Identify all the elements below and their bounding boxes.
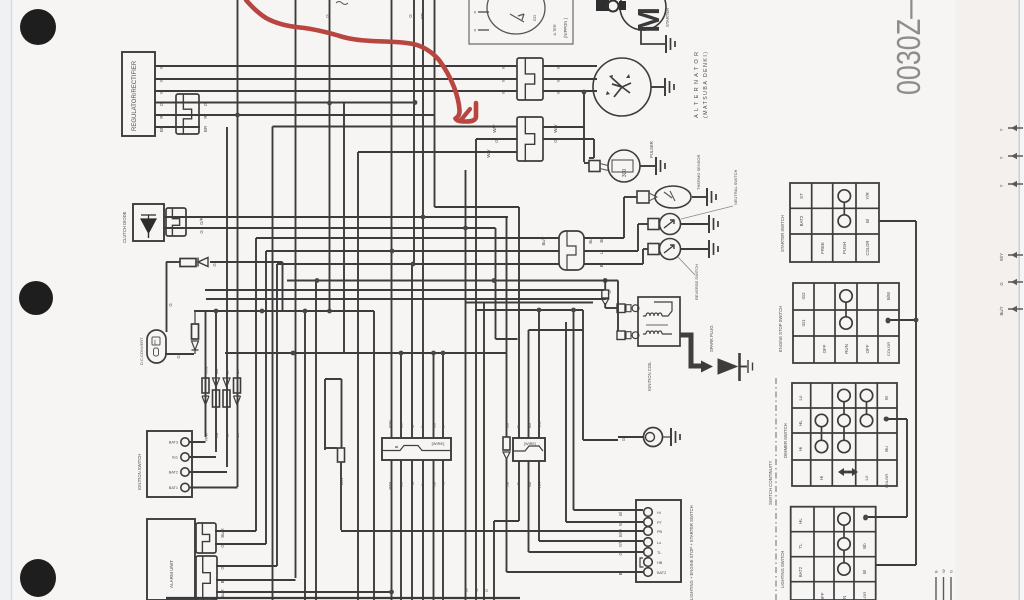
- svg-text:W/Y: W/Y: [999, 253, 1004, 261]
- svg-text:G: G: [408, 14, 413, 18]
- svg-text:GO: GO: [532, 15, 537, 21]
- svg-text:PUSH: PUSH: [842, 242, 847, 254]
- svg-text:BR: BR: [159, 125, 164, 132]
- svg-text:G: G: [159, 102, 164, 106]
- svg-text:Y/R: Y/R: [537, 482, 542, 489]
- svg-text:Y: Y: [501, 91, 506, 94]
- svg-text:W/Y: W/Y: [492, 124, 497, 133]
- svg-text:B: B: [441, 425, 446, 428]
- svg-text:Bu: Bu: [431, 423, 436, 428]
- svg-text:IG1: IG1: [172, 456, 178, 460]
- svg-text:W: W: [474, 588, 479, 592]
- svg-text:Bl: Bl: [618, 512, 623, 516]
- svg-text:Y: Y: [999, 156, 1004, 159]
- svg-text:W/Y: W/Y: [553, 124, 558, 133]
- svg-text:SPARK PLUG: SPARK PLUG: [709, 326, 714, 352]
- svg-text:IGNITION COIL: IGNITION COIL: [647, 361, 652, 391]
- svg-text:BAT1: BAT1: [169, 486, 178, 490]
- svg-text:Hi: Hi: [819, 476, 824, 480]
- svg-text:B/W: B/W: [618, 529, 623, 537]
- svg-text:Bu: Bu: [599, 237, 604, 243]
- svg-text:BAT2: BAT2: [799, 215, 804, 226]
- svg-text:Y: Y: [999, 184, 1004, 187]
- svg-text:R/W: R/W: [387, 482, 392, 490]
- svg-text:W/Y: W/Y: [486, 149, 491, 158]
- svg-text:G: G: [999, 282, 1004, 285]
- svg-text:Bu: Bu: [431, 482, 436, 487]
- svg-text:REVERSE SWITCH: REVERSE SWITCH: [694, 264, 699, 300]
- svg-text:R/W: R/W: [204, 433, 209, 441]
- svg-text:G: G: [220, 544, 225, 547]
- svg-text:M: M: [631, 7, 666, 33]
- svg-text:Hi: Hi: [798, 447, 803, 451]
- svg-text:IGNITION SWITCH: IGNITION SWITCH: [137, 454, 142, 490]
- svg-text:THERMO SENSOR: THERMO SENSOR: [696, 155, 701, 190]
- svg-text:MINI: MINI: [153, 339, 157, 345]
- svg-text:PULSER: PULSER: [649, 141, 654, 158]
- svg-text:Y: Y: [501, 66, 506, 69]
- svg-text:G: G: [516, 425, 521, 428]
- svg-text:Lo: Lo: [864, 475, 869, 480]
- svg-text:Bu: Bu: [527, 482, 532, 487]
- svg-text:COLOR: COLOR: [884, 474, 889, 488]
- svg-text:G: G: [410, 482, 415, 485]
- svg-text:G: G: [325, 14, 330, 18]
- svg-text:Bu: Bu: [214, 433, 219, 438]
- svg-text:Bu: Bu: [399, 423, 404, 428]
- svg-text:(NIPPON ): (NIPPON ): [563, 17, 568, 38]
- svg-text:G: G: [516, 482, 521, 485]
- svg-text:G/R: G/R: [199, 217, 204, 225]
- svg-text:(MATSUBA DENKI): (MATSUBA DENKI): [703, 52, 709, 118]
- svg-text:Y/R: Y/R: [537, 421, 542, 428]
- svg-text:Bu: Bu: [504, 423, 509, 428]
- svg-text:Hi: Hi: [657, 511, 661, 515]
- svg-text:Bu: Bu: [399, 482, 404, 487]
- svg-text:B/W: B/W: [339, 477, 344, 485]
- svg-text:Lo: Lo: [798, 395, 803, 400]
- svg-text:IG2: IG2: [801, 292, 806, 300]
- svg-text:Bu: Bu: [588, 238, 593, 244]
- svg-text:Bu/Y: Bu/Y: [999, 306, 1004, 315]
- svg-text:COLOR: COLOR: [862, 592, 867, 600]
- svg-text:Bl: Bl: [865, 219, 870, 223]
- svg-text:SWITCH CONTINUITY: SWITCH CONTINUITY: [768, 460, 773, 505]
- svg-text:B: B: [599, 264, 604, 267]
- svg-text:PB: PB: [657, 530, 663, 534]
- svg-text:Bu: Bu: [884, 446, 889, 452]
- svg-text:Br: Br: [464, 587, 469, 592]
- svg-text:TL: TL: [798, 543, 803, 549]
- svg-text:[WIRE]: [WIRE]: [432, 441, 445, 446]
- svg-text:Bu: Bu: [527, 423, 532, 428]
- svg-text:Y/R: Y/R: [865, 192, 870, 199]
- svg-text:B: B: [618, 572, 623, 575]
- svg-text:0030Z—: 0030Z—: [890, 0, 927, 95]
- svg-text:BR: BR: [203, 125, 208, 132]
- svg-text:Br: Br: [225, 432, 230, 437]
- svg-text:Bu: Bu: [504, 482, 509, 487]
- svg-text:STARTER: STARTER: [665, 8, 670, 27]
- svg-text:Bb: Bb: [862, 543, 867, 549]
- svg-text:G: G: [949, 570, 954, 573]
- svg-text:BAT2: BAT2: [169, 471, 178, 475]
- svg-text:Y/R: Y/R: [618, 541, 623, 548]
- svg-text:B: B: [934, 570, 939, 573]
- svg-text:LIGHTING + ENGINE STOP + START: LIGHTING + ENGINE STOP + STARTER SWITCH: [689, 505, 694, 600]
- svg-text:G: G: [618, 552, 623, 555]
- svg-text:Lo: Lo: [657, 541, 661, 545]
- svg-text:D.C.CONVERT: D.C.CONVERT: [139, 337, 144, 365]
- svg-text:OFF: OFF: [822, 344, 827, 353]
- svg-text:Y: Y: [999, 128, 1004, 131]
- svg-text:B/W: B/W: [886, 291, 891, 300]
- svg-text:LIGHTING SWITCH: LIGHTING SWITCH: [780, 551, 785, 588]
- svg-text:Y: Y: [501, 79, 506, 82]
- svg-text:ST: ST: [799, 193, 804, 199]
- svg-text:R/W: R/W: [387, 420, 392, 428]
- svg-text:Br: Br: [225, 369, 230, 374]
- svg-text:ON: ON: [842, 596, 847, 600]
- svg-text:OFF: OFF: [820, 592, 825, 600]
- svg-text:Y: Y: [159, 79, 164, 82]
- svg-text:[WIRE]: [WIRE]: [524, 442, 536, 446]
- svg-text:Bu: Bu: [214, 369, 219, 374]
- svg-text:BAT2: BAT2: [657, 571, 666, 575]
- svg-text:Bk: Bk: [235, 369, 240, 374]
- svg-text:Y: Y: [474, 28, 477, 33]
- svg-text:G: G: [607, 290, 612, 293]
- svg-text:B: B: [441, 482, 446, 485]
- svg-text:W: W: [618, 522, 623, 526]
- svg-text:ENGINE STOP SWITCH: ENGINE STOP SWITCH: [778, 306, 783, 352]
- svg-text:R/W: R/W: [204, 366, 209, 374]
- svg-text:Y: Y: [556, 79, 561, 82]
- svg-text:TL: TL: [657, 551, 661, 555]
- svg-text:G: G: [621, 438, 626, 441]
- svg-text:STARTER SWITCH: STARTER SWITCH: [780, 215, 785, 252]
- svg-text:B: B: [220, 580, 225, 583]
- svg-text:G: G: [220, 566, 225, 569]
- svg-text:HL: HL: [798, 420, 803, 426]
- svg-text:G: G: [494, 139, 499, 143]
- svg-text:Y: Y: [474, 10, 477, 15]
- svg-text:BAT2: BAT2: [798, 566, 803, 577]
- svg-text:W: W: [941, 569, 946, 573]
- svg-text:DIMMER SWITCH: DIMMER SWITCH: [783, 423, 788, 458]
- svg-text:COLOR: COLOR: [886, 342, 891, 356]
- svg-text:300: 300: [622, 169, 628, 178]
- svg-text:NEUTRAL SWITCH: NEUTRAL SWITCH: [733, 169, 738, 205]
- svg-text:Y: Y: [159, 66, 164, 69]
- svg-text:BR: BR: [420, 12, 425, 19]
- svg-text:G: G: [410, 425, 415, 428]
- svg-text:IG1: IG1: [801, 319, 806, 327]
- svg-text:G: G: [553, 139, 558, 143]
- svg-text:Bk: Bk: [235, 433, 240, 438]
- svg-text:HB: HB: [657, 561, 663, 565]
- svg-text:Y: Y: [556, 91, 561, 94]
- svg-text:Bl: Bl: [862, 570, 867, 574]
- svg-text:COLOR: COLOR: [865, 241, 870, 256]
- svg-text:Bu/R: Bu/R: [220, 528, 225, 537]
- svg-text:G: G: [203, 102, 208, 106]
- svg-text:CLUTCH DIODE: CLUTCH DIODE: [122, 211, 127, 243]
- svg-text:Y: Y: [159, 91, 164, 94]
- svg-text:RUN: RUN: [844, 344, 849, 354]
- svg-text:Bu/Y: Bu/Y: [541, 236, 546, 245]
- svg-text:FREE: FREE: [820, 242, 825, 254]
- svg-text:G: G: [484, 589, 489, 592]
- svg-text:HL: HL: [798, 518, 803, 524]
- svg-text:REGULATOR/RECTIFIER: REGULATOR/RECTIFIER: [132, 60, 138, 131]
- svg-text:PT: PT: [657, 521, 663, 525]
- svg-text:ALARM UNIT: ALARM UNIT: [169, 560, 174, 588]
- svg-text:BAT3: BAT3: [169, 441, 178, 445]
- svg-text:Y: Y: [556, 66, 561, 69]
- svg-text:B: B: [394, 445, 399, 448]
- svg-text:OFF: OFF: [865, 344, 870, 353]
- svg-text:A.TER: A.TER: [553, 24, 557, 35]
